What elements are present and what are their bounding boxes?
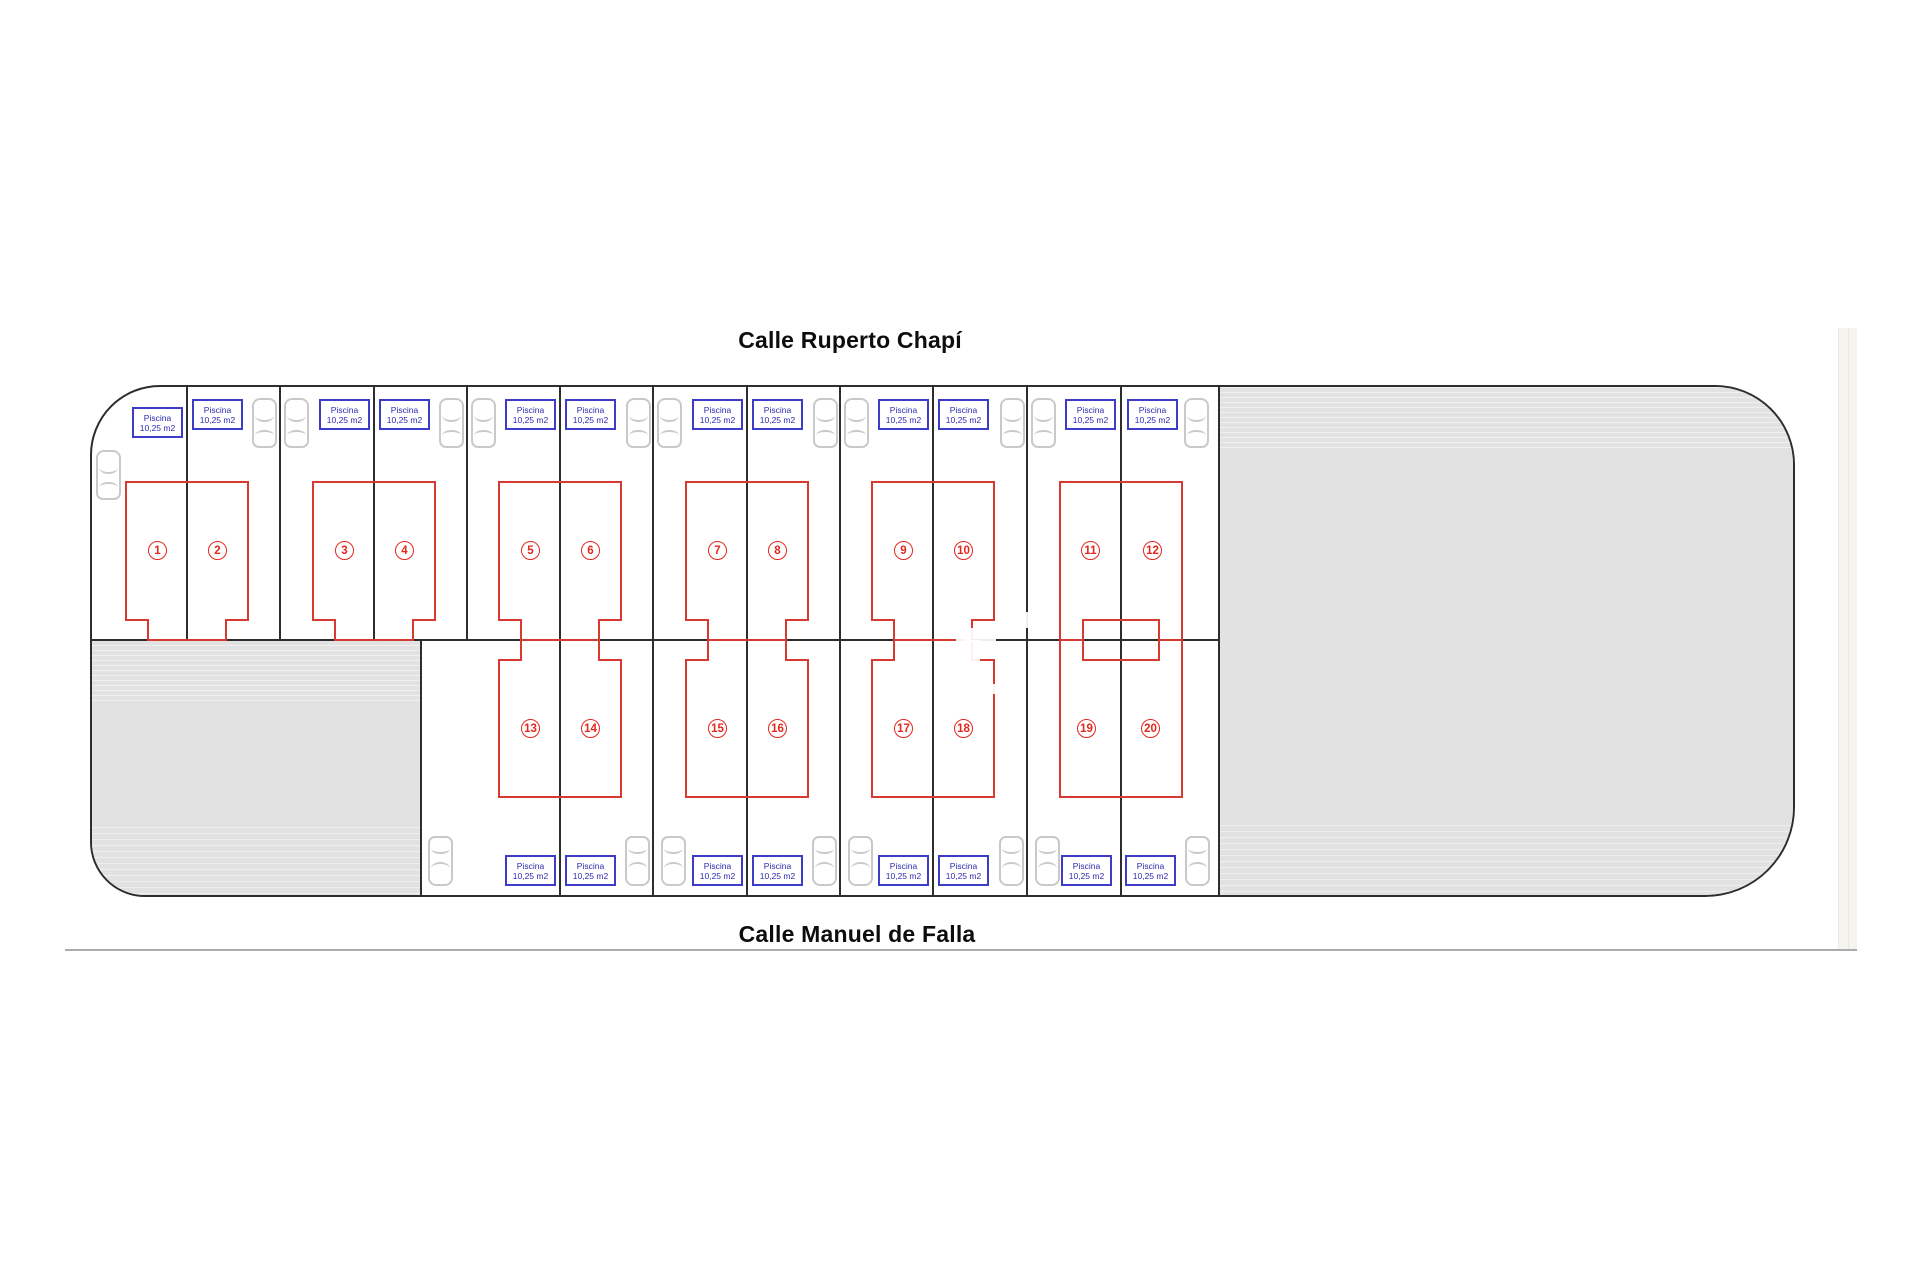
- pool-label: Piscina: [950, 405, 977, 415]
- plot-divider: [186, 385, 188, 640]
- plot-divider: [746, 385, 748, 640]
- artifact-smudge: [986, 684, 1022, 694]
- pool-area-label: 10,25 m2: [946, 871, 981, 881]
- unit-number-badge: 17: [894, 719, 913, 738]
- street-title-top: Calle Ruperto Chapí: [738, 327, 962, 354]
- car-icon: [96, 450, 121, 500]
- unit-number-badge: 10: [954, 541, 973, 560]
- pool-label: Piscina: [1139, 405, 1166, 415]
- car-icon: [848, 836, 873, 886]
- pool-label: Piscina: [1137, 861, 1164, 871]
- pool-box-unit-4: Piscina10,25 m2: [379, 399, 430, 430]
- pool-label: Piscina: [517, 861, 544, 871]
- pool-box-unit-20: Piscina10,25 m2: [1125, 855, 1176, 886]
- car-icon: [844, 398, 869, 448]
- pool-box-unit-9: Piscina10,25 m2: [878, 399, 929, 430]
- pool-box-unit-14: Piscina10,25 m2: [565, 855, 616, 886]
- car-icon: [471, 398, 496, 448]
- pool-label: Piscina: [577, 405, 604, 415]
- plot-divider: [373, 385, 375, 640]
- pool-area-label: 10,25 m2: [1069, 871, 1104, 881]
- unit-number-badge: 19: [1077, 719, 1096, 738]
- plot-divider: [1120, 640, 1122, 895]
- unit-number-badge: 7: [708, 541, 727, 560]
- unit-number-badge: 6: [581, 541, 600, 560]
- car-icon: [661, 836, 686, 886]
- car-icon: [439, 398, 464, 448]
- parking-area-right: [1218, 387, 1793, 895]
- unit-number-badge: 20: [1141, 719, 1160, 738]
- site-boundary: [90, 385, 1795, 897]
- pool-area-label: 10,25 m2: [760, 415, 795, 425]
- pool-area-label: 10,25 m2: [886, 871, 921, 881]
- pool-box-unit-2: Piscina10,25 m2: [192, 399, 243, 430]
- pool-box-unit-18: Piscina10,25 m2: [938, 855, 989, 886]
- pool-label: Piscina: [1073, 861, 1100, 871]
- site-plan-canvas: Calle Ruperto Chapí Piscina10,25 m21Pisc…: [0, 0, 1920, 1280]
- car-icon: [999, 836, 1024, 886]
- pool-box-unit-7: Piscina10,25 m2: [692, 399, 743, 430]
- pool-box-unit-13: Piscina10,25 m2: [505, 855, 556, 886]
- plot-divider: [839, 640, 841, 895]
- car-icon: [1000, 398, 1025, 448]
- unit-number-badge: 15: [708, 719, 727, 738]
- pool-label: Piscina: [704, 861, 731, 871]
- car-icon: [284, 398, 309, 448]
- plot-divider: [652, 640, 654, 895]
- pool-box-unit-1: Piscina10,25 m2: [132, 407, 183, 438]
- plot-divider: [932, 385, 934, 640]
- pool-box-unit-10: Piscina10,25 m2: [938, 399, 989, 430]
- plot-divider: [559, 640, 561, 895]
- pool-box-unit-19: Piscina10,25 m2: [1061, 855, 1112, 886]
- unit-number-badge: 16: [768, 719, 787, 738]
- plot-divider: [839, 385, 841, 640]
- car-icon: [813, 398, 838, 448]
- pool-label: Piscina: [764, 861, 791, 871]
- pool-box-unit-8: Piscina10,25 m2: [752, 399, 803, 430]
- pool-label: Piscina: [577, 861, 604, 871]
- plot-divider: [652, 385, 654, 640]
- plot-divider: [559, 385, 561, 640]
- pool-area-label: 10,25 m2: [886, 415, 921, 425]
- unit-number-badge: 13: [521, 719, 540, 738]
- unit-number-badge: 18: [954, 719, 973, 738]
- unit-number-badge: 2: [208, 541, 227, 560]
- unit-number-badge: 5: [521, 541, 540, 560]
- street-line: [65, 949, 1857, 951]
- pool-label: Piscina: [391, 405, 418, 415]
- pool-area-label: 10,25 m2: [573, 415, 608, 425]
- pool-label: Piscina: [144, 413, 171, 423]
- car-icon: [1184, 398, 1209, 448]
- unit-number-badge: 8: [768, 541, 787, 560]
- pool-label: Piscina: [331, 405, 358, 415]
- street-title-bottom: Calle Manuel de Falla: [739, 921, 976, 948]
- pool-area-label: 10,25 m2: [1135, 415, 1170, 425]
- pool-box-unit-5: Piscina10,25 m2: [505, 399, 556, 430]
- middle-divider: [90, 639, 1218, 641]
- pool-box-unit-6: Piscina10,25 m2: [565, 399, 616, 430]
- car-icon: [657, 398, 682, 448]
- roadside-strip: [1838, 328, 1857, 949]
- pool-area-label: 10,25 m2: [573, 871, 608, 881]
- unit-number-badge: 11: [1081, 541, 1100, 560]
- artifact-smudge: [938, 698, 962, 710]
- plot-divider: [746, 640, 748, 895]
- car-icon: [252, 398, 277, 448]
- parking-area-left: [92, 640, 422, 897]
- pool-box-unit-12: Piscina10,25 m2: [1127, 399, 1178, 430]
- plot-divider: [1120, 385, 1122, 640]
- car-icon: [1031, 398, 1056, 448]
- car-icon: [625, 836, 650, 886]
- pool-box-unit-15: Piscina10,25 m2: [692, 855, 743, 886]
- pool-label: Piscina: [764, 405, 791, 415]
- pool-area-label: 10,25 m2: [200, 415, 235, 425]
- pool-label: Piscina: [890, 405, 917, 415]
- artifact-smudge: [998, 612, 1032, 628]
- pool-label: Piscina: [890, 861, 917, 871]
- car-icon: [1185, 836, 1210, 886]
- artifact-smudge: [970, 640, 980, 704]
- unit-number-badge: 9: [894, 541, 913, 560]
- pool-area-label: 10,25 m2: [1133, 871, 1168, 881]
- pool-area-label: 10,25 m2: [513, 415, 548, 425]
- plot-divider: [466, 385, 468, 640]
- plot-divider: [1026, 385, 1028, 640]
- pool-box-unit-16: Piscina10,25 m2: [752, 855, 803, 886]
- unit-number-badge: 14: [581, 719, 600, 738]
- pool-label: Piscina: [517, 405, 544, 415]
- car-icon: [812, 836, 837, 886]
- pool-area-label: 10,25 m2: [946, 415, 981, 425]
- unit-number-badge: 12: [1143, 541, 1162, 560]
- unit-number-badge: 1: [148, 541, 167, 560]
- pool-area-label: 10,25 m2: [513, 871, 548, 881]
- pool-label: Piscina: [704, 405, 731, 415]
- pool-area-label: 10,25 m2: [700, 415, 735, 425]
- plot-divider: [932, 640, 934, 895]
- pool-box-unit-11: Piscina10,25 m2: [1065, 399, 1116, 430]
- pool-area-label: 10,25 m2: [760, 871, 795, 881]
- pool-box-unit-17: Piscina10,25 m2: [878, 855, 929, 886]
- pool-label: Piscina: [204, 405, 231, 415]
- plot-divider: [279, 385, 281, 640]
- pool-box-unit-3: Piscina10,25 m2: [319, 399, 370, 430]
- unit-number-badge: 4: [395, 541, 414, 560]
- pool-label: Piscina: [1077, 405, 1104, 415]
- car-icon: [626, 398, 651, 448]
- car-icon: [428, 836, 453, 886]
- car-icon: [1035, 836, 1060, 886]
- pool-area-label: 10,25 m2: [387, 415, 422, 425]
- pool-area-label: 10,25 m2: [1073, 415, 1108, 425]
- pool-label: Piscina: [950, 861, 977, 871]
- plot-divider: [1026, 640, 1028, 895]
- pool-area-label: 10,25 m2: [700, 871, 735, 881]
- pool-area-label: 10,25 m2: [140, 423, 175, 433]
- pool-area-label: 10,25 m2: [327, 415, 362, 425]
- unit-number-badge: 3: [335, 541, 354, 560]
